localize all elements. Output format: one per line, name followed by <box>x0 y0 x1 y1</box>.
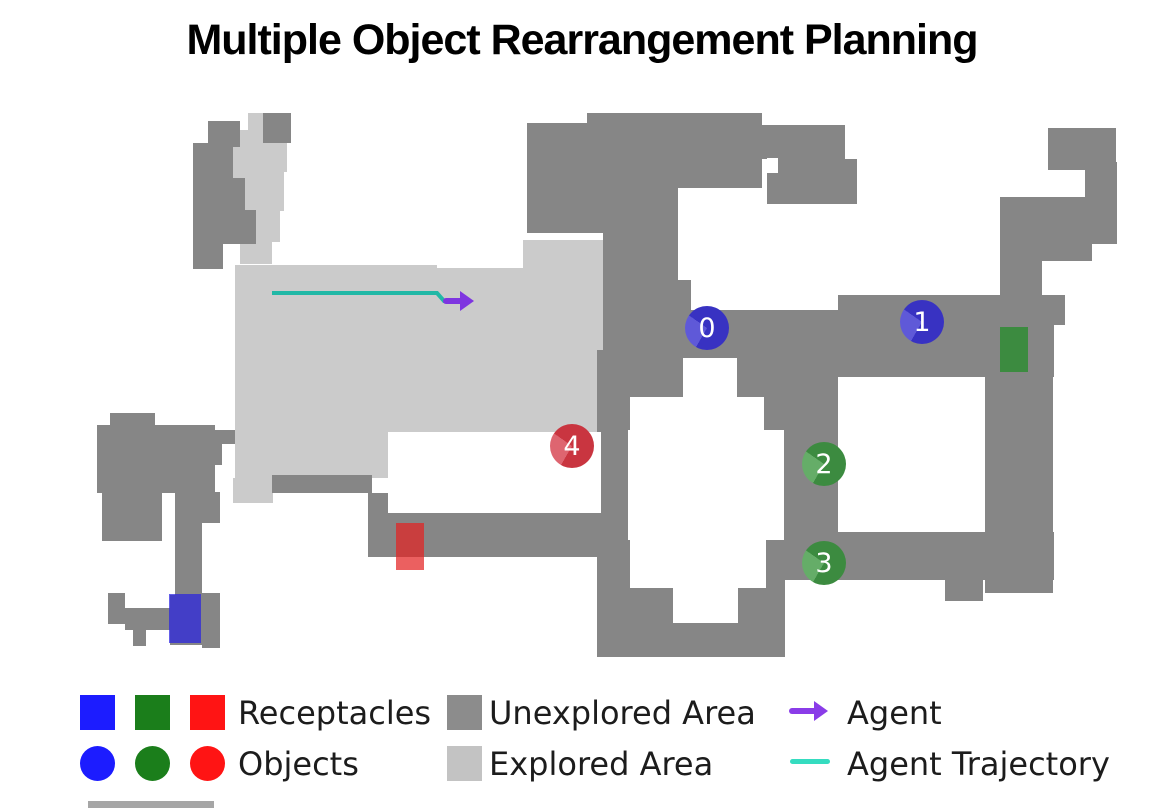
legend-blue-receptacle-swatch <box>80 695 115 730</box>
legend-red-receptacle-swatch <box>190 695 225 730</box>
cropped-bottom-bar <box>88 801 214 808</box>
agent-arrow-icon <box>788 697 836 727</box>
legend-unexplored-label: Unexplored Area <box>489 694 756 732</box>
agent-trajectory-layer <box>0 0 1164 808</box>
agent-trajectory-icon <box>790 759 830 764</box>
legend-explored-label: Explored Area <box>489 745 713 783</box>
legend-objects-label: Objects <box>238 745 359 783</box>
figure-canvas: Multiple Object Rearrangement Planning 0… <box>0 0 1164 808</box>
legend-green-object-swatch <box>135 746 170 781</box>
legend-agent-trajectory-label: Agent Trajectory <box>847 745 1110 783</box>
legend-agent-label: Agent <box>847 694 942 732</box>
legend-green-receptacle-swatch <box>135 695 170 730</box>
legend-red-object-swatch <box>190 746 225 781</box>
legend-receptacles-label: Receptacles <box>238 694 431 732</box>
agent-trajectory-line <box>272 293 450 301</box>
legend-unexplored-swatch <box>447 695 482 730</box>
legend-explored-swatch <box>447 746 482 781</box>
legend-blue-object-swatch <box>80 746 115 781</box>
